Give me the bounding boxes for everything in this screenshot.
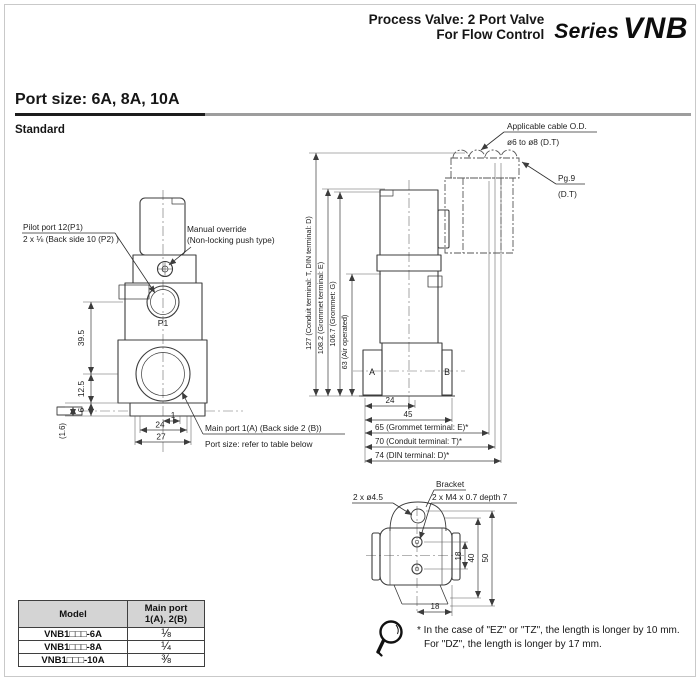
dim-1: 1 [171, 411, 175, 420]
footnote-line1: * In the case of "EZ" or "TZ", the lengt… [417, 624, 680, 638]
front-left-dimensions: 39.5 12.5 6 (1.6) [58, 302, 130, 439]
dim-27: 27 [156, 432, 166, 442]
dim-40: 40 [467, 553, 476, 562]
series-title: SeriesVNB [554, 14, 688, 44]
port-cell: ⅛ [128, 628, 205, 641]
column-header-port-line1: Main port [130, 603, 202, 614]
dim-63: 63 (Air operated) [340, 315, 349, 370]
dim-127: 127 (Conduit terminal: T, DIN terminal: … [304, 216, 313, 350]
title-line2: For Flow Control [369, 27, 545, 42]
column-header-model: Model [19, 601, 128, 628]
dim-12-5: 12.5 [76, 381, 86, 398]
port-cell: ¼ [128, 641, 205, 654]
heading-rule [15, 113, 691, 116]
valve-side-outline [359, 190, 455, 396]
side-bottom-dimensions: 24 45 65 (Grommet terminal: E)* 70 (Cond… [365, 163, 501, 463]
dim-45: 45 [404, 410, 413, 419]
bracket-label: Bracket [436, 479, 465, 489]
dim-39-5: 39.5 [76, 330, 86, 347]
port-size-table: Model Main port 1(A), 2(B) VNB1□□□-6A ⅛ … [18, 600, 205, 667]
dim-74: 74 (DIN terminal: D)* [375, 451, 449, 460]
model-cell: VNB1□□□-10A [19, 654, 128, 667]
p1-port-label: P1 [158, 318, 169, 328]
pilot-port-label-line1: Pilot port 12(P1) [23, 222, 83, 232]
dim-24: 24 [155, 420, 165, 430]
dim-106-7: 106.7 (Grommet: G) [328, 281, 337, 346]
footnote-text: * In the case of "EZ" or "TZ", the lengt… [417, 618, 680, 651]
model-cell: VNB1□□□-6A [19, 628, 128, 641]
dim-6: 6 [76, 407, 86, 412]
bracket-body-outline [372, 502, 460, 604]
thread-label: 2 x M4 x 0.7 depth 7 [432, 492, 508, 502]
table-row: VNB1□□□-10A ⅜ [19, 654, 205, 667]
column-header-main-port: Main port 1(A), 2(B) [128, 601, 205, 628]
dim-50: 50 [481, 553, 490, 562]
din-connector-phantom [445, 150, 519, 253]
title-line1: Process Valve: 2 Port Valve [369, 12, 545, 27]
pilot-port-label-line2: 2 x ⅛ (Back side 10 (P2) ) [23, 234, 119, 244]
dim-1-6: (1.6) [58, 423, 67, 439]
manual-override-label-line2: (Non-locking push type) [187, 235, 275, 245]
series-prefix: Series [554, 20, 619, 43]
port-cell: ⅜ [128, 654, 205, 667]
cable-od-label-line1: Applicable cable O.D. [507, 121, 587, 131]
pg9-callout: Pg.9 (D.T) [522, 162, 585, 199]
page-header: Process Valve: 2 Port Valve For Flow Con… [369, 12, 688, 42]
manual-override-label-line1: Manual override [187, 224, 247, 234]
footnote: * In the case of "EZ" or "TZ", the lengt… [374, 618, 680, 660]
dim-65: 65 (Grommet terminal: E)* [375, 423, 468, 432]
cable-od-label-line2: ø6 to ø8 (D.T) [507, 137, 559, 147]
holes-label: 2 x ø4.5 [353, 492, 383, 502]
dim-18-horizontal: 18 [431, 602, 440, 611]
bracket-view-drawing: Bracket 2 x ø4.5 2 x M4 x 0.7 depth 7 18… [340, 478, 520, 620]
bracket-dimensions: 18 40 50 18 [417, 511, 495, 616]
dim-70: 70 (Conduit terminal: T)* [375, 437, 462, 446]
side-view-drawing: A B Applicable cable O.D. ø6 to ø8 (D.T)… [295, 118, 700, 470]
pilot-port-callout: Pilot port 12(P1) 2 x ⅛ (Back side 10 (P… [22, 222, 155, 293]
pg9-label-line1: Pg.9 [558, 173, 575, 183]
series-name: VNB [623, 12, 688, 45]
port-b-label: B [444, 367, 450, 377]
magnifier-icon [374, 618, 408, 660]
footnote-line2: For "DZ", the length is longer by 17 mm. [417, 638, 680, 652]
cable-od-callout: Applicable cable O.D. ø6 to ø8 (D.T) [481, 121, 597, 150]
port-a-label: A [369, 367, 375, 377]
page-title: Process Valve: 2 Port Valve For Flow Con… [369, 12, 545, 42]
dim-18-vertical: 18 [454, 551, 463, 560]
dim-24: 24 [386, 396, 395, 405]
dim-108-2: 108.2 (Grommet terminal: E) [316, 262, 325, 354]
table-header-row: Model Main port 1(A), 2(B) [19, 601, 205, 628]
pg9-label-line2: (D.T) [558, 189, 577, 199]
column-header-port-line2: 1(A), 2(B) [130, 614, 202, 625]
model-cell: VNB1□□□-8A [19, 641, 128, 654]
port-size-heading: Port size: 6A, 8A, 10A [15, 91, 180, 109]
table-row: VNB1□□□-6A ⅛ [19, 628, 205, 641]
table-row: VNB1□□□-8A ¼ [19, 641, 205, 654]
